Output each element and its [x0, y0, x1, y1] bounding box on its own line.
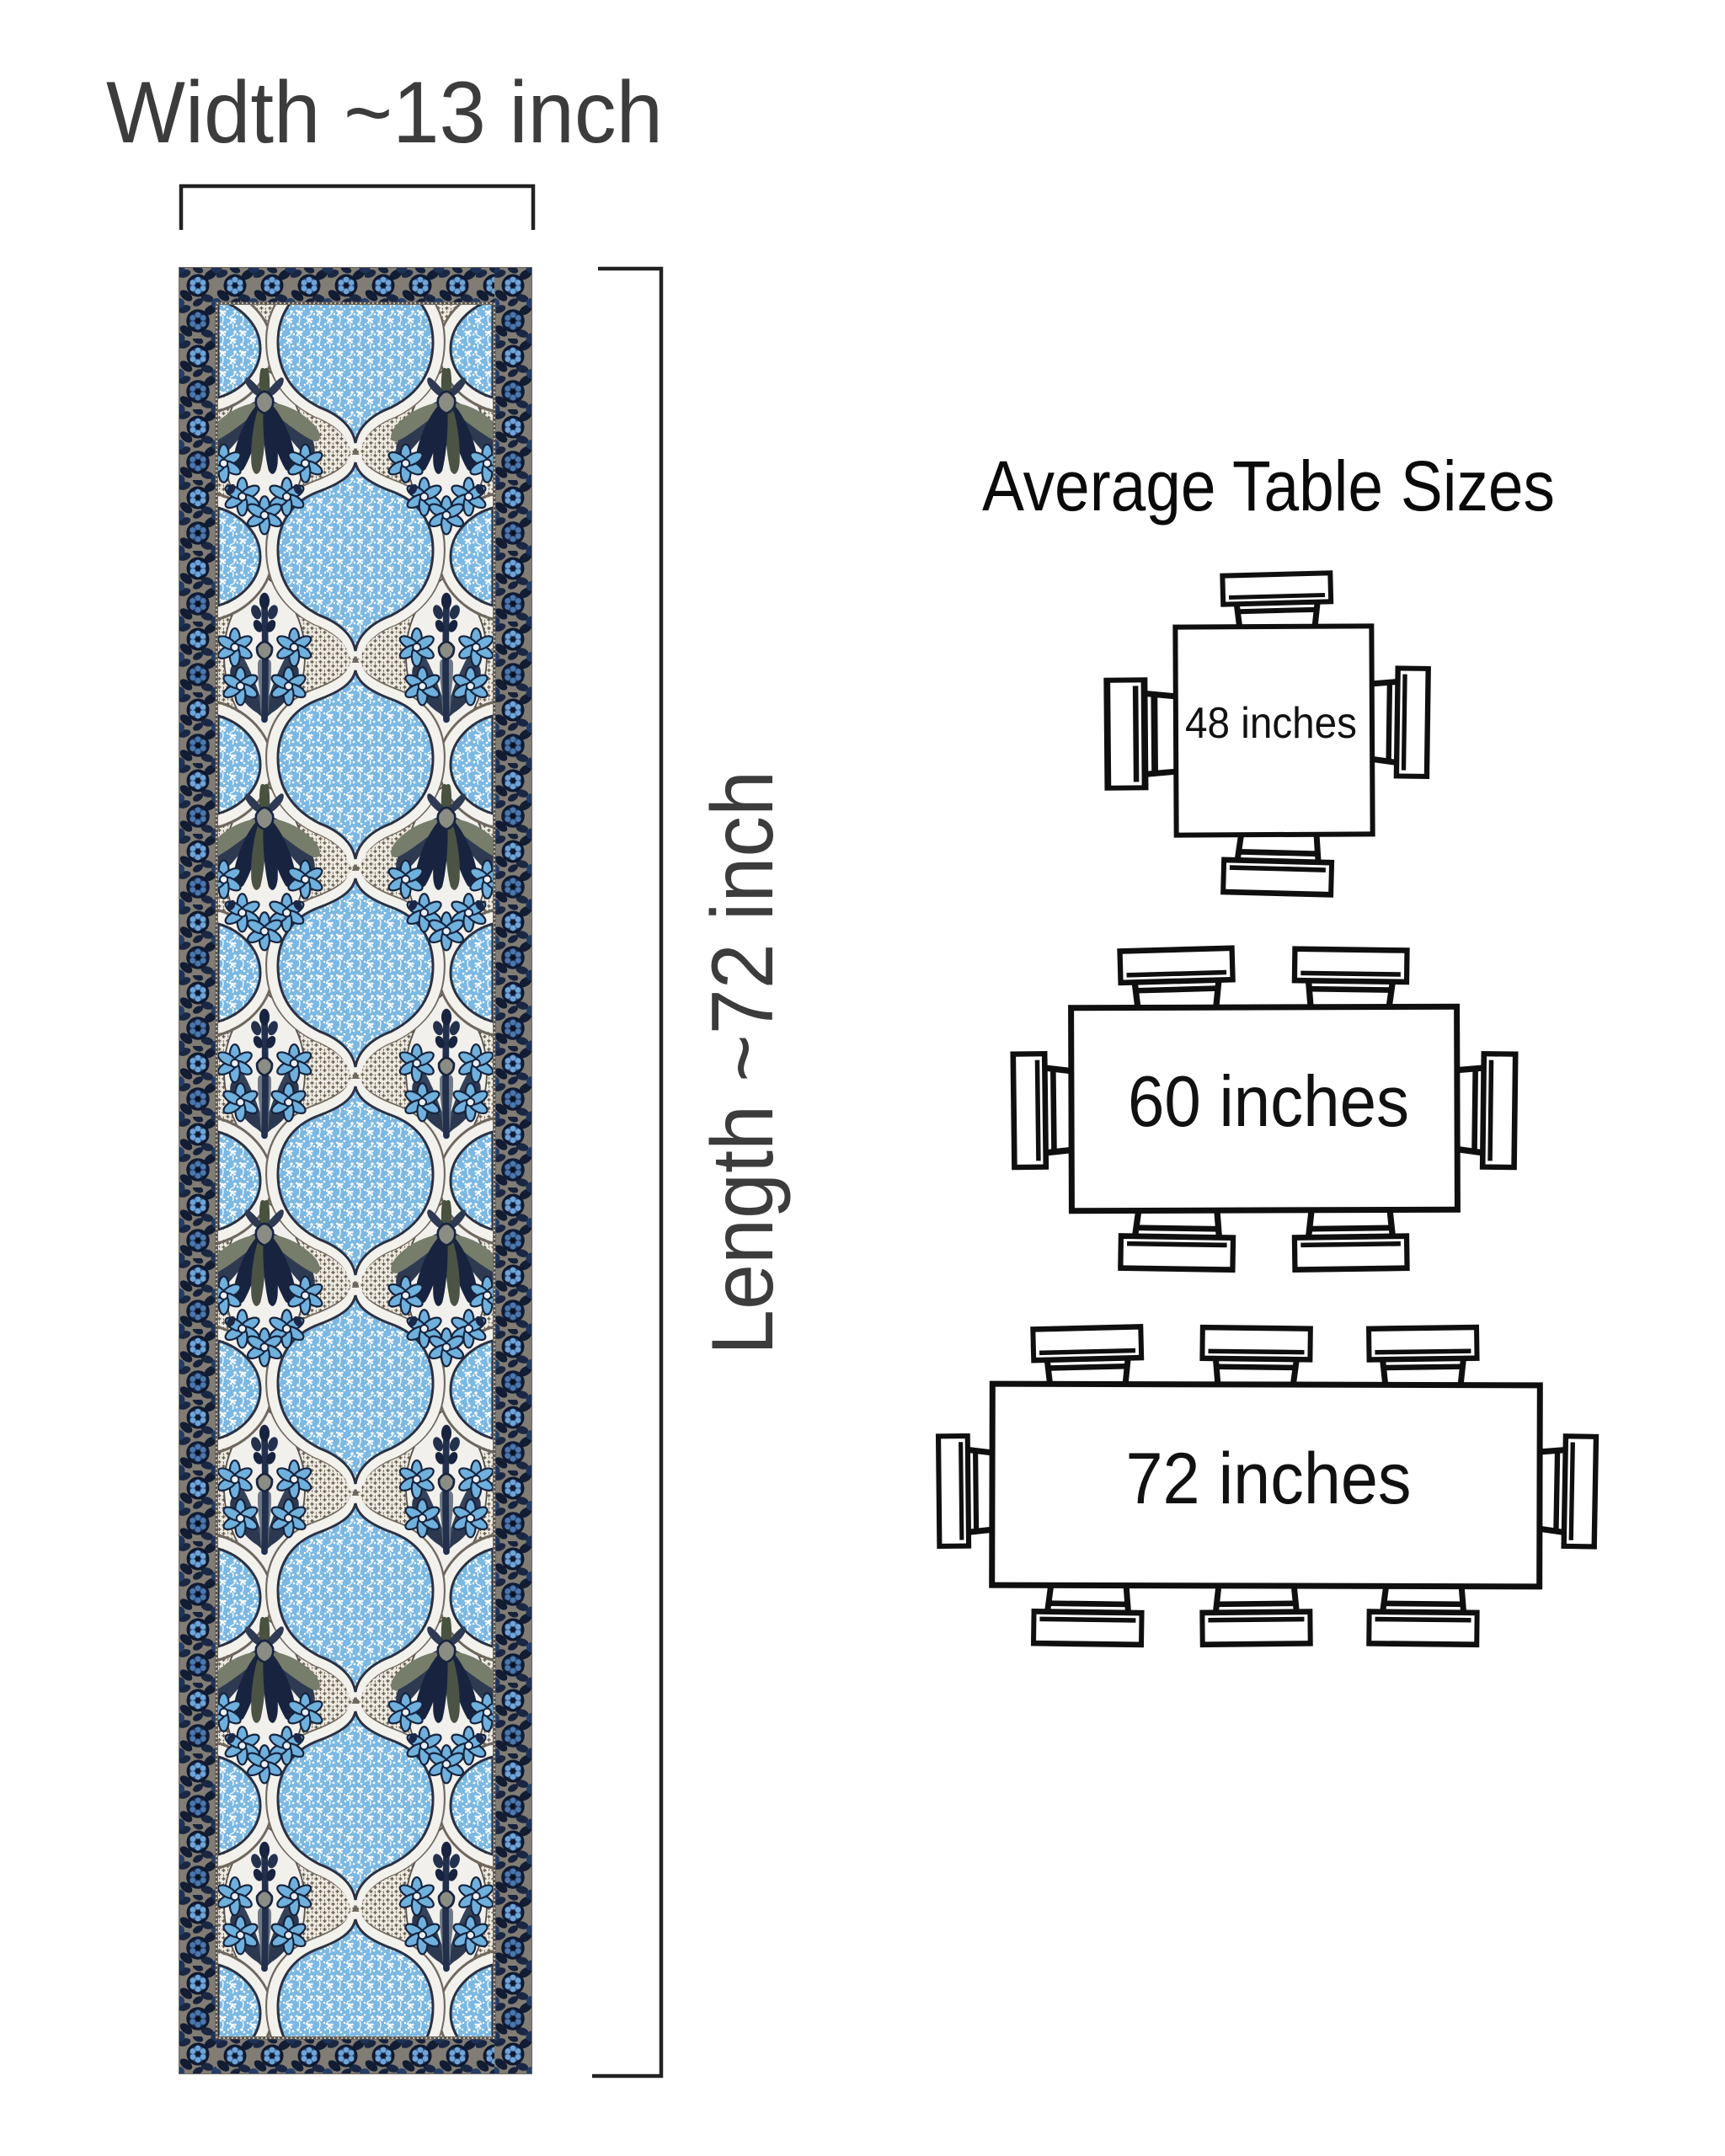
svg-text:48 inches: 48 inches	[1185, 699, 1357, 748]
svg-text:Length ~72 inch: Length ~72 inch	[694, 771, 792, 1355]
svg-text:60 inches: 60 inches	[1128, 1062, 1409, 1142]
svg-text:Average Table Sizes: Average Table Sizes	[982, 446, 1555, 526]
svg-text:Width ~13 inch: Width ~13 inch	[106, 64, 663, 162]
svg-text:72 inches: 72 inches	[1126, 1438, 1412, 1519]
